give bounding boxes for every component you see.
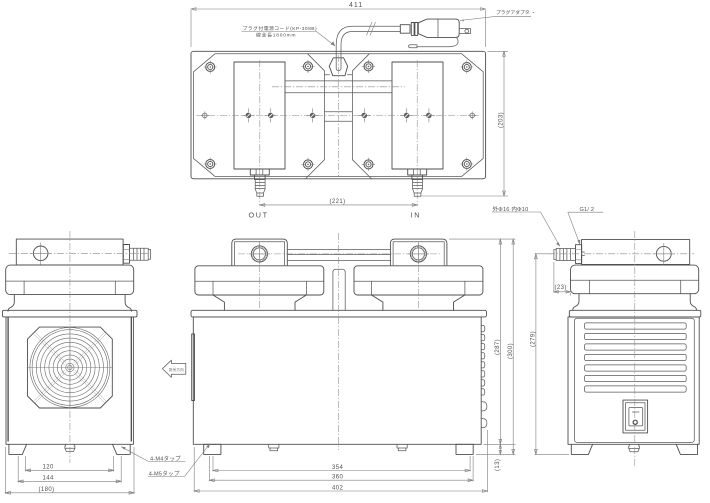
svg-text:(279): (279) (531, 331, 537, 347)
svg-text:4-M5タップ: 4-M5タップ (149, 469, 180, 477)
svg-text:(13): (13) (495, 459, 501, 471)
svg-text:(23): (23) (555, 285, 567, 291)
svg-text:プラグアダプタ ・: プラグアダプタ ・ (496, 9, 536, 16)
svg-text:IN: IN (411, 211, 422, 220)
svg-text:線全長1800mm: 線全長1800mm (256, 32, 296, 39)
svg-text:402: 402 (332, 485, 343, 491)
svg-text:(221): (221) (330, 199, 346, 205)
svg-text:(287): (287) (495, 339, 501, 355)
svg-text:120: 120 (43, 465, 54, 471)
svg-text:(180): (180) (39, 487, 55, 493)
svg-text:411: 411 (349, 2, 363, 9)
svg-text:OUT: OUT (249, 211, 269, 220)
svg-text:360: 360 (332, 475, 343, 481)
svg-text:(203): (203) (499, 112, 505, 128)
svg-text:(300): (300) (508, 343, 514, 359)
svg-text:排気方向: 排気方向 (169, 367, 184, 372)
svg-text:354: 354 (332, 465, 343, 471)
svg-text:プラグ付電源コード(KP-308B): プラグ付電源コード(KP-308B) (243, 25, 318, 32)
svg-text:外Φ16 内Φ10: 外Φ16 内Φ10 (493, 205, 529, 213)
svg-text:144: 144 (43, 476, 54, 482)
